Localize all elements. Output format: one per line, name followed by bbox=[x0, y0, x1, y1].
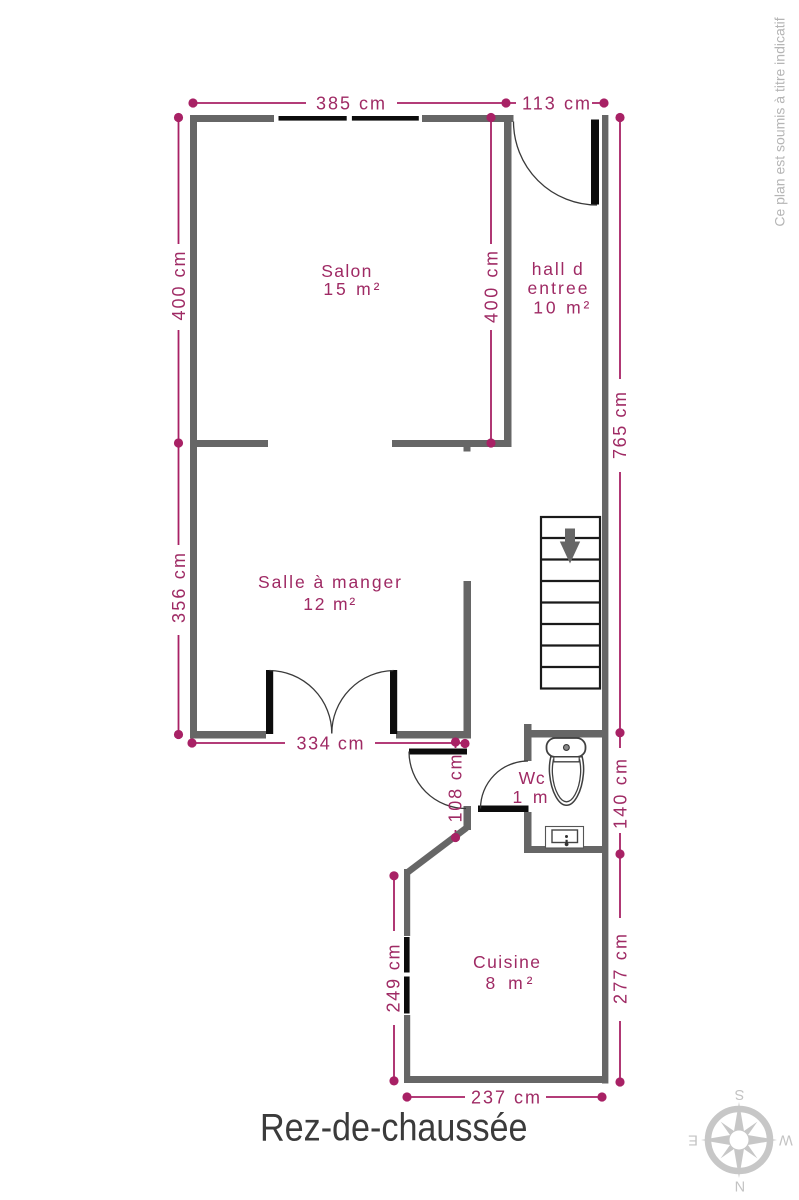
svg-text:Cuisine: Cuisine bbox=[473, 952, 540, 972]
svg-text:Salon: Salon bbox=[321, 261, 371, 281]
svg-text:E: E bbox=[688, 1131, 698, 1147]
svg-text:1 m: 1 m bbox=[513, 787, 548, 807]
svg-text:entree: entree bbox=[528, 278, 588, 298]
svg-text:Rez-de-chaussée: Rez-de-chaussée bbox=[260, 1107, 528, 1150]
svg-text:12 m²: 12 m² bbox=[303, 594, 355, 614]
svg-text:S: S bbox=[735, 1086, 745, 1102]
svg-text:113 cm: 113 cm bbox=[522, 94, 590, 114]
svg-text:N: N bbox=[735, 1178, 745, 1194]
svg-text:Ce plan est soumis à titre ind: Ce plan est soumis à titre indicatif bbox=[772, 17, 788, 226]
svg-text:W: W bbox=[779, 1132, 793, 1148]
svg-text:hall d: hall d bbox=[532, 259, 583, 279]
svg-text:Salle à manger: Salle à manger bbox=[258, 572, 401, 592]
svg-text:Wc: Wc bbox=[519, 768, 545, 788]
